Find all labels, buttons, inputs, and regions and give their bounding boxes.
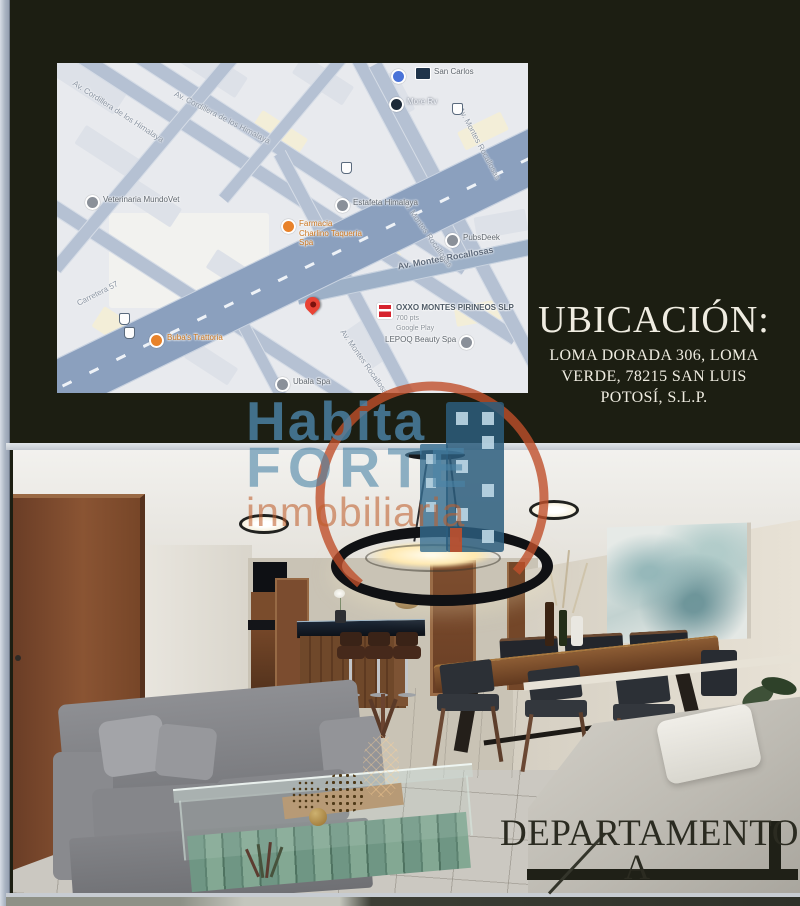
watermark-word-inmobiliaria: inmobiliaria [246, 492, 474, 533]
watermark: Habita FORTE inmobiliaria [246, 394, 474, 533]
route-shield-icon [341, 162, 352, 174]
poi-bubas: Buba's Trattoria [149, 333, 223, 348]
abstract-painting [607, 522, 751, 643]
poi-lepoq: LEPOQ Beauty Spa [385, 335, 474, 350]
location-map-image: Av. Cordillera de los Himalaya Av. Cordi… [57, 63, 528, 393]
poi-icon [85, 195, 100, 210]
decor-sphere [309, 808, 327, 826]
decor-sphere [291, 780, 321, 810]
door-handle [15, 655, 21, 661]
poi-marker [391, 69, 406, 84]
dining-chair-end [701, 650, 737, 696]
coffee-table [163, 750, 483, 893]
location-title: UBICACIÓN: [528, 298, 780, 342]
pharmacy-icon [281, 219, 296, 234]
poi-farmacia: Farmacia Charlino Taquería Spa [281, 219, 362, 248]
poi-san-carlos: San Carlos [415, 67, 474, 80]
decor-sphere [323, 772, 365, 814]
poi-icon [391, 69, 406, 84]
poi-estafeta: Estafeta Himalaya [335, 198, 418, 213]
oxxo-icon [377, 303, 393, 319]
poi-pubsdeek: PubsDeek [445, 233, 500, 248]
route-shield-icon [452, 103, 463, 115]
route-shield-icon [124, 327, 135, 339]
page-edge-strip [0, 0, 10, 906]
apartment-unit: A [624, 846, 650, 888]
poi-icon [335, 198, 350, 213]
route-shield-icon [119, 313, 130, 325]
poi-more-rv: More Rv [389, 97, 437, 112]
poi-icon [389, 97, 404, 112]
business-icon [415, 67, 431, 80]
poi-veterinaria: Veterinaria MundoVet [85, 195, 180, 210]
bottom-bar [6, 897, 800, 906]
restaurant-icon [149, 333, 164, 348]
poi-oxxo: OXXO MONTES PIRINEOS SLP 700 pts Google … [377, 303, 514, 333]
poi-icon [459, 335, 474, 350]
poi-icon [445, 233, 460, 248]
